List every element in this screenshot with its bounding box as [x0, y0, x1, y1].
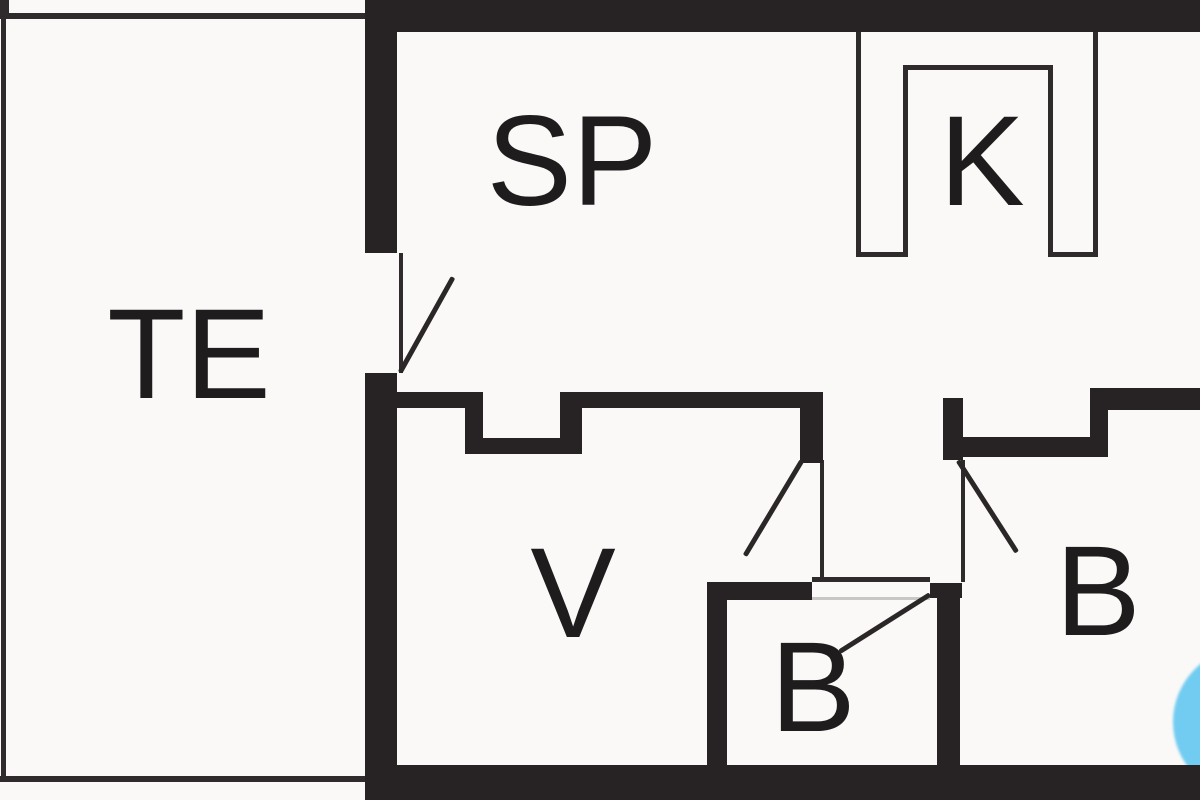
wall-bsmall-left: [707, 582, 727, 767]
door-plane-sp: [399, 253, 403, 373]
wall-bsmall-right: [937, 583, 960, 767]
door-plane-bsmall-bottom: [812, 597, 930, 600]
room-label-sp: SP: [487, 98, 658, 226]
kitchen-bottom-left: [856, 252, 908, 257]
wall-b-top-high: [1108, 388, 1200, 410]
wall-corner-v-door: [800, 407, 823, 463]
wall-sp-v-right: [560, 392, 823, 408]
door-leaf-sp: [398, 276, 455, 374]
wall-b-step: [1090, 388, 1108, 457]
kitchen-outer-right: [1093, 32, 1098, 257]
terrace-border-bottom: [0, 776, 365, 782]
room-label-v: V: [530, 530, 615, 658]
wall-sp-v-left: [393, 392, 483, 408]
terrace-corner-mark: [0, 0, 9, 13]
wall-b-top-low: [963, 437, 1090, 457]
door-plane-bsmall-top: [812, 577, 930, 582]
wall-left-lower: [365, 373, 397, 800]
floor-plan: TE SP K V B B: [0, 0, 1200, 800]
wall-bsmall-top: [707, 582, 812, 600]
corridor-line-left: [820, 460, 824, 578]
kitchen-inner-top: [903, 65, 1053, 70]
room-label-b-small: B: [770, 624, 855, 752]
kitchen-outer-left: [856, 32, 861, 257]
terrace-border-top: [0, 13, 365, 19]
wall-left-upper: [365, 0, 397, 253]
wall-stub-b-door: [943, 398, 963, 460]
room-label-b-right: B: [1055, 528, 1140, 656]
wall-bottom: [365, 765, 1200, 800]
terrace-border-left: [1, 13, 6, 782]
kitchen-inner-left: [903, 65, 908, 257]
kitchen-inner-right: [1048, 65, 1053, 257]
door-leaf-v: [743, 459, 804, 557]
kitchen-bottom-right: [1048, 252, 1098, 257]
room-label-te: TE: [107, 291, 271, 419]
door-leaf-b-right: [956, 459, 1019, 553]
wall-top: [365, 0, 1200, 32]
corridor-line-right: [961, 460, 965, 582]
room-label-k: K: [939, 98, 1024, 226]
